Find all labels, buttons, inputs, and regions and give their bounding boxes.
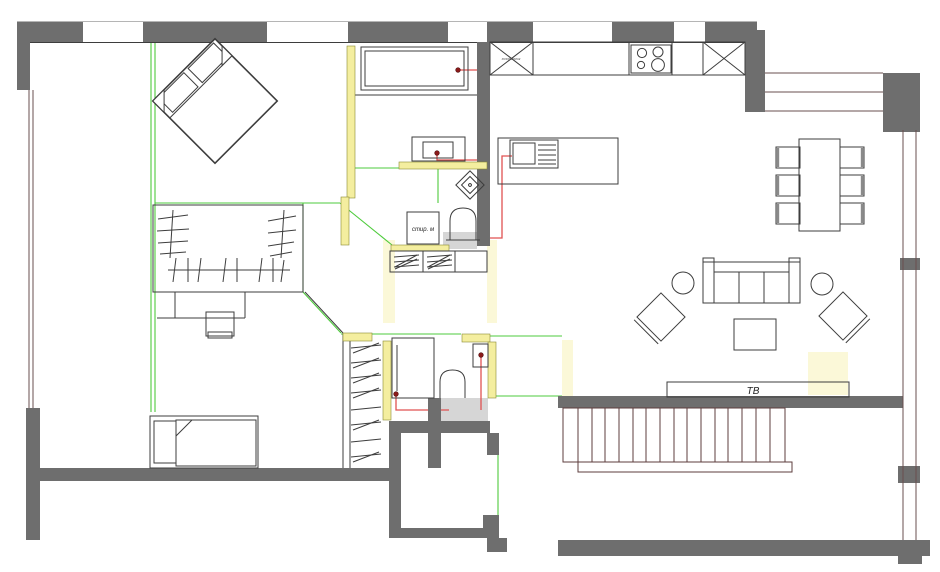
toilet-lower <box>440 370 465 398</box>
sink-bowl <box>513 143 535 164</box>
dining-table <box>799 139 840 231</box>
single-bed <box>150 416 258 468</box>
coffee-table <box>734 319 776 350</box>
bathtub <box>361 47 468 90</box>
island-with-sink <box>498 138 618 184</box>
washbasin <box>412 137 465 161</box>
tall-cabinet <box>703 42 745 75</box>
floor-plan: стир. м <box>0 0 940 572</box>
sofa <box>703 258 800 303</box>
water-outlet-dot <box>394 392 399 397</box>
staircase <box>563 408 792 472</box>
washing-machine-label: стир. м <box>412 227 434 233</box>
wardrobe <box>153 205 303 292</box>
cooktop <box>631 45 671 73</box>
blanket-fold <box>176 420 192 436</box>
tv-label: ТВ <box>747 386 760 397</box>
water-outlet-dot <box>479 353 484 358</box>
drainboard <box>538 145 556 164</box>
dressing-table <box>157 292 245 338</box>
stair-landing <box>578 462 792 472</box>
double-bed <box>153 39 277 163</box>
light-glow-zones <box>383 240 848 398</box>
side-table <box>811 273 833 295</box>
fridge-label: холодильник <box>501 57 521 61</box>
washing-machine: стир. м <box>407 212 439 244</box>
side-table <box>672 272 694 294</box>
built-in-wardrobe <box>390 251 487 272</box>
armchair <box>634 293 685 344</box>
kitchen-counter: холодильник <box>490 42 745 75</box>
refrigerator: холодильник <box>490 42 533 75</box>
water-outlet-dot <box>456 68 461 73</box>
pillow <box>154 421 176 463</box>
water-outlet-dot <box>435 151 440 156</box>
armchair <box>819 292 870 343</box>
shower-cabin <box>392 338 434 398</box>
shelving-rack <box>351 343 381 462</box>
